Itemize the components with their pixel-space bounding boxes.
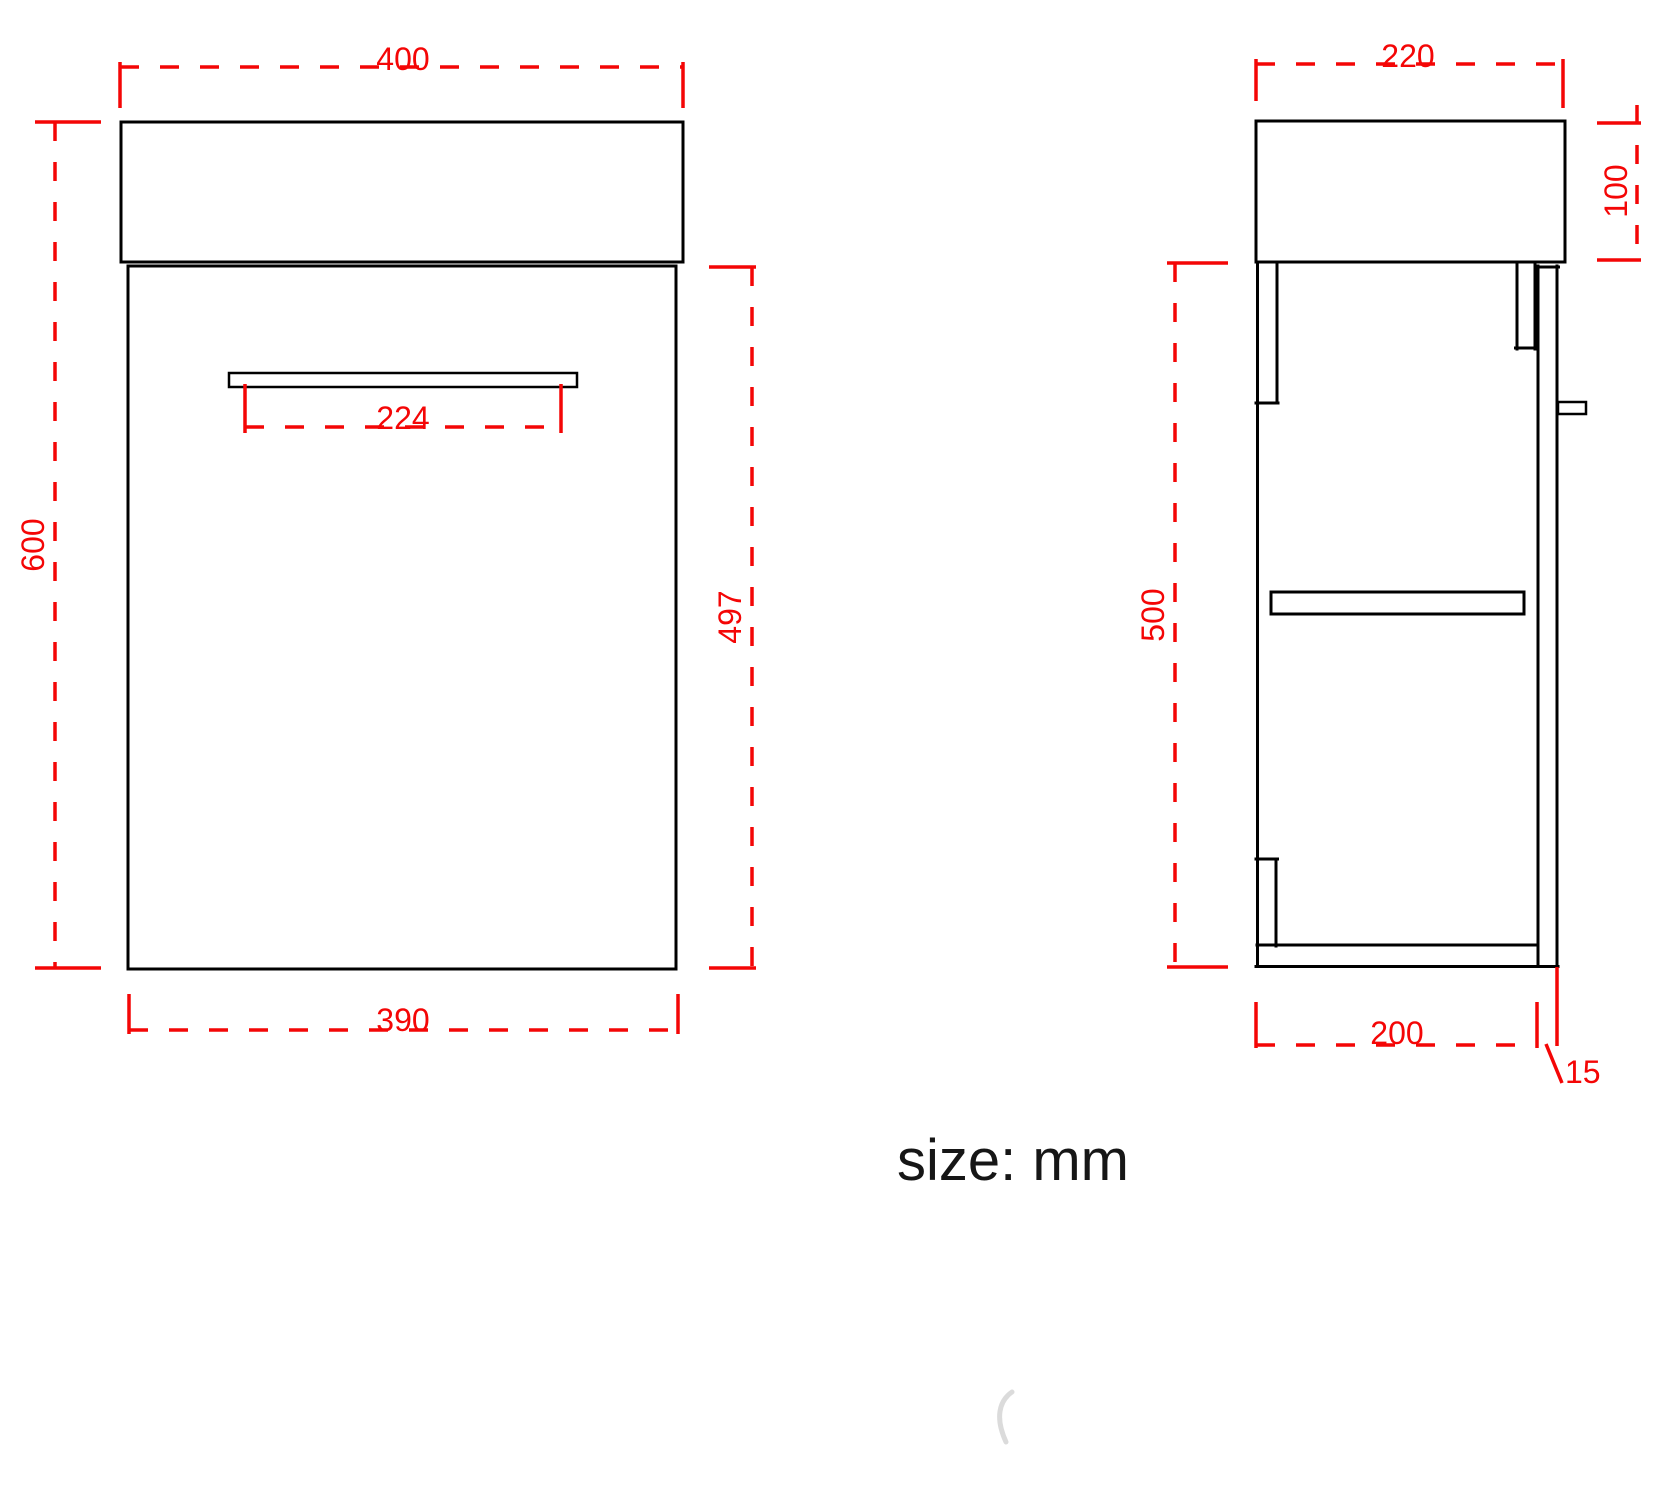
side-dim-door-thickness-label: 15 bbox=[1565, 1054, 1601, 1090]
front-basin-top-outline bbox=[121, 122, 683, 262]
side-dim-depth-bottom-label: 200 bbox=[1370, 1015, 1423, 1051]
units-note: size: mm bbox=[897, 1128, 1129, 1193]
side-dim-basin-height-label: 100 bbox=[1598, 164, 1634, 217]
side-door-handle bbox=[1558, 402, 1586, 414]
front-cabinet-outline bbox=[128, 266, 676, 969]
side-dim-cabinet-height-label: 500 bbox=[1135, 588, 1171, 641]
front-dim-cabinet-height-right-label: 497 bbox=[712, 590, 748, 643]
side-dim-depth-top-label: 220 bbox=[1381, 38, 1434, 74]
technical-drawing-svg: 400 600 224 497 390 bbox=[0, 0, 1672, 1500]
front-dim-width-bottom-label: 390 bbox=[376, 1002, 429, 1038]
side-shelf bbox=[1271, 592, 1524, 614]
front-dim-height-left-label: 600 bbox=[15, 518, 51, 571]
technical-drawing-page: 400 600 224 497 390 bbox=[0, 0, 1672, 1500]
front-dim-handle-width-label: 224 bbox=[376, 400, 429, 436]
side-basin-top-outline bbox=[1256, 121, 1565, 262]
front-door-handle bbox=[229, 373, 577, 387]
front-dim-width-top-label: 400 bbox=[376, 41, 429, 77]
